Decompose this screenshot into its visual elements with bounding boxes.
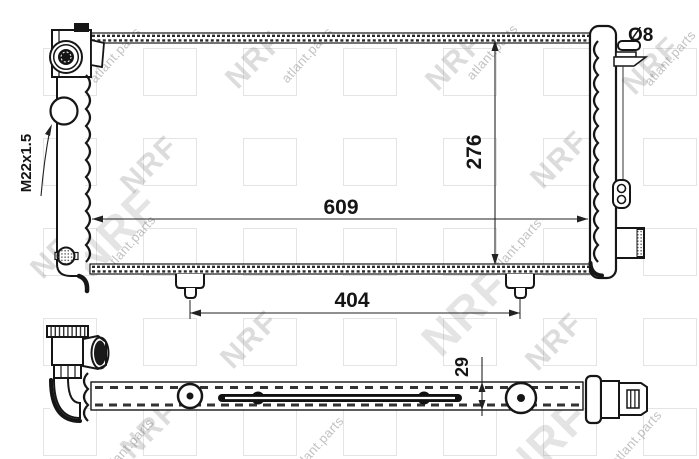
filler-cap xyxy=(50,41,82,73)
front-left-tank xyxy=(50,23,104,291)
core-height-label: 276 xyxy=(463,134,486,169)
pin-diameter-label: Ø8 xyxy=(628,25,653,46)
outlet-pipe xyxy=(616,228,644,258)
core-top-bar xyxy=(90,33,592,43)
technical-drawing-page: atlant.parts atlant.parts atlant.parts a… xyxy=(0,0,699,459)
core-bottom-bar xyxy=(90,264,592,274)
mounting-pin-left xyxy=(176,274,204,298)
inlet-thread-text: M22x1.5 xyxy=(18,134,35,192)
clamp-band xyxy=(54,365,81,378)
filler-neck-ring xyxy=(47,326,88,337)
pin-spacing-label: 404 xyxy=(334,289,369,312)
label-inlet-thread: M22x1.5 xyxy=(18,124,52,196)
side-gasket-joint xyxy=(84,373,88,421)
core-thickness-label: 29 xyxy=(452,357,472,377)
dimension-pin-spacing: 404 xyxy=(190,289,520,319)
radiator-diagram: 609 276 404 M22x1.5 xyxy=(0,0,699,459)
side-view: 29 xyxy=(47,326,647,423)
top-tab xyxy=(74,23,89,32)
side-clip xyxy=(613,180,630,208)
left-gasket-joint xyxy=(86,75,90,262)
front-view: 609 276 404 M22x1.5 xyxy=(18,23,653,319)
dimension-core-width: 609 xyxy=(92,196,588,223)
inlet-port xyxy=(51,98,78,125)
side-inlet-pipe xyxy=(83,336,109,369)
core-width-label: 609 xyxy=(323,196,358,219)
side-hole-left xyxy=(178,384,202,408)
side-right-connector xyxy=(586,376,647,423)
front-right-tank xyxy=(590,26,646,278)
side-hole-right xyxy=(506,383,536,413)
mounting-pin-right xyxy=(506,274,534,298)
dimension-core-height: 276 xyxy=(463,40,499,265)
